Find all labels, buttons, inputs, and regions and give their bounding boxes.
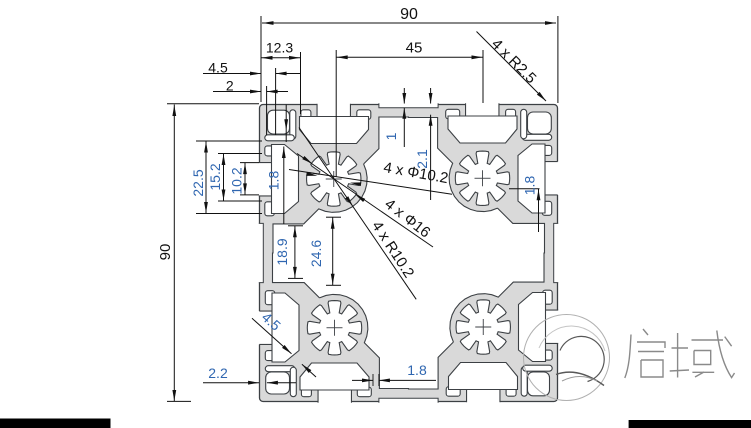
svg-text:1.8: 1.8 (522, 176, 538, 196)
svg-text:22.5: 22.5 (190, 169, 206, 196)
svg-text:1.8: 1.8 (407, 362, 427, 378)
svg-text:1.8: 1.8 (265, 171, 281, 191)
svg-text:2.2: 2.2 (208, 365, 228, 381)
svg-text:90: 90 (157, 244, 174, 261)
svg-text:45: 45 (406, 40, 423, 57)
svg-text:24.6: 24.6 (308, 240, 324, 267)
svg-text:4.5: 4.5 (208, 59, 228, 75)
svg-text:18.9: 18.9 (274, 238, 290, 265)
svg-text:12.3: 12.3 (266, 39, 293, 55)
svg-text:90: 90 (400, 6, 418, 23)
svg-text:2: 2 (226, 77, 234, 93)
svg-text:15.2: 15.2 (207, 163, 223, 190)
svg-text:10.2: 10.2 (229, 167, 245, 194)
svg-text:1: 1 (383, 132, 399, 140)
